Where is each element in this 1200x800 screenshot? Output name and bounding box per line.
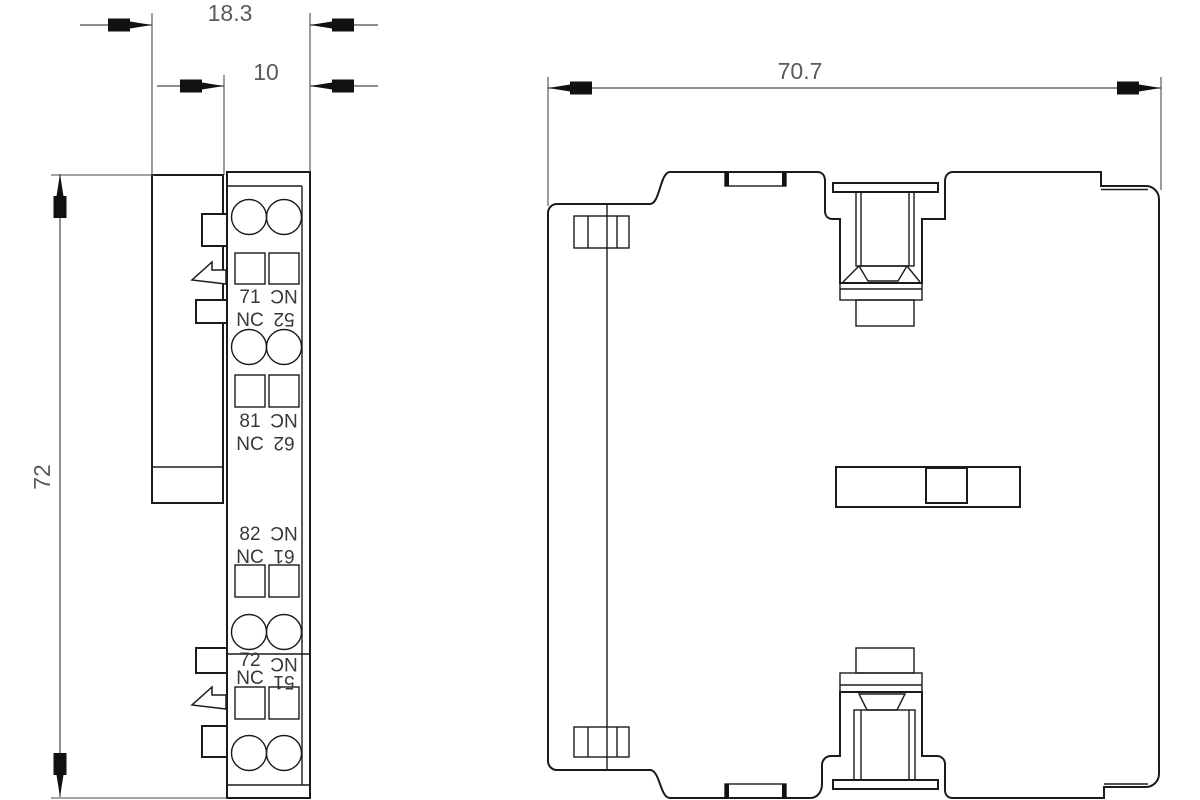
terminal-opening — [269, 375, 299, 407]
dimension-body-width: 10 — [157, 59, 378, 175]
mounting-direction-arrow-icon — [192, 687, 226, 709]
dimension-arrow-icon — [180, 80, 224, 93]
terminal-row: 81 NC 62 NC — [236, 409, 297, 455]
screw-circle — [267, 330, 302, 365]
claw-spring-wedge — [859, 266, 907, 281]
terminal-row: 72 NC 51 NC — [236, 650, 297, 692]
dimension-arrow-icon — [310, 19, 354, 32]
terminal-label: NC — [236, 310, 263, 331]
screw-circle — [232, 200, 267, 235]
terminal-opening — [269, 253, 299, 284]
terminal-label: 71 — [239, 287, 260, 308]
terminal-label: 82 — [239, 524, 260, 545]
side-view: 71 NC 52 NC 81 NC 62 NC 82 NC 61 NC — [29, 0, 378, 798]
claw-spring-wedge — [859, 694, 905, 710]
dimension-arrow-icon — [310, 80, 354, 93]
screw-circle — [232, 736, 267, 771]
claw-stem — [854, 710, 915, 780]
snap-tab — [196, 648, 227, 673]
terminal-opening — [269, 565, 299, 597]
terminal-label-rotated: 52 — [273, 308, 294, 329]
dimension-value: 70.7 — [778, 58, 823, 84]
dimension-value: 18.3 — [208, 0, 253, 26]
terminal-opening — [235, 375, 265, 407]
claw-spring-line — [843, 266, 859, 282]
terminal-label: 81 — [239, 411, 260, 432]
fixing-slot-edge — [782, 172, 786, 186]
fixing-slot-edge — [725, 784, 729, 798]
dimension-value: 10 — [253, 59, 279, 85]
terminal-opening — [235, 687, 265, 719]
terminal-label-rotated: NC — [270, 409, 297, 430]
technical-drawing-canvas: 71 NC 52 NC 81 NC 62 NC 82 NC 61 NC — [0, 0, 1200, 800]
terminal-row: 82 NC 61 NC — [236, 522, 297, 568]
mounting-direction-arrow-icon — [192, 262, 226, 284]
terminal-label-rotated: NC — [270, 522, 297, 543]
claw-spring-line — [907, 266, 920, 282]
screw-circle — [232, 330, 267, 365]
dimension-arrow-icon — [54, 174, 67, 218]
claw-bar — [833, 183, 938, 192]
snap-tab — [202, 726, 227, 757]
terminal-label-rotated: 62 — [273, 432, 294, 453]
terminal-label-rotated: NC — [270, 285, 297, 306]
terminal-row: 71 NC 52 NC — [236, 285, 297, 331]
terminal-label: NC — [236, 668, 263, 689]
terminal-label-rotated: NC — [270, 653, 297, 674]
claw-stem — [856, 192, 914, 266]
fixing-slot-edge — [725, 172, 729, 186]
housing-outline — [548, 172, 1159, 798]
dimension-arrow-icon — [1117, 82, 1161, 95]
terminal-label: NC — [236, 547, 263, 568]
dimensional-drawing: 71 NC 52 NC 81 NC 62 NC 82 NC 61 NC — [0, 0, 1200, 800]
snap-tab — [202, 214, 227, 246]
dimension-arrow-icon — [108, 19, 152, 32]
dimension-value: 72 — [29, 464, 55, 490]
screw-circle — [232, 615, 267, 650]
terminal-opening — [235, 253, 265, 284]
screw-circle — [267, 200, 302, 235]
screw-circle — [267, 736, 302, 771]
terminal-label: NC — [236, 434, 263, 455]
terminal-opening — [235, 565, 265, 597]
fixing-slot-edge — [782, 784, 786, 798]
dimension-arrow-icon — [548, 82, 592, 95]
dimension-arrow-icon — [54, 753, 67, 797]
snap-tab — [196, 300, 227, 323]
terminal-label-rotated: 61 — [273, 545, 294, 566]
screw-circle — [267, 615, 302, 650]
claw-bar — [833, 780, 938, 789]
front-view: 70.7 — [548, 58, 1161, 798]
